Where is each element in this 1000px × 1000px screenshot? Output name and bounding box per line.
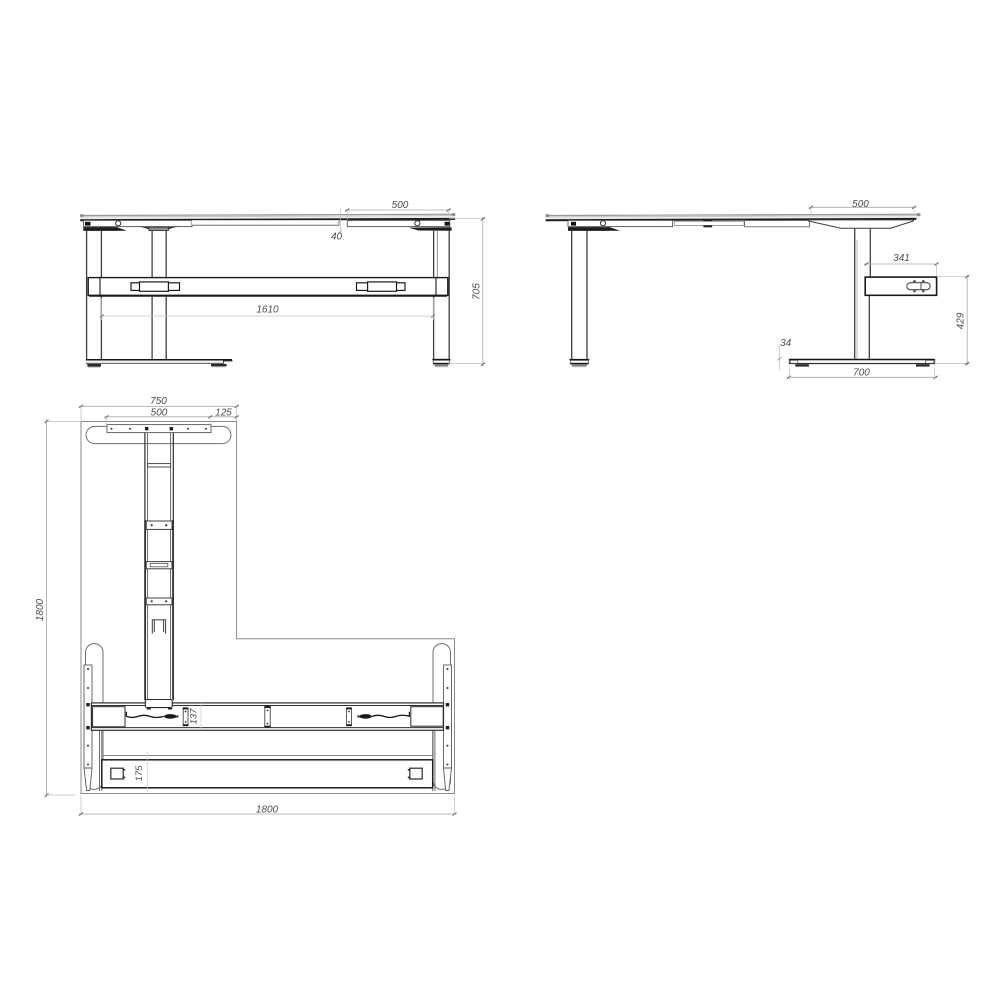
svg-text:40: 40: [331, 231, 343, 242]
svg-text:500: 500: [151, 407, 168, 418]
svg-text:34: 34: [780, 338, 792, 349]
svg-text:175: 175: [134, 765, 145, 782]
svg-text:125: 125: [215, 407, 232, 418]
svg-text:700: 700: [853, 367, 870, 378]
svg-text:429: 429: [956, 312, 967, 329]
svg-text:1800: 1800: [256, 804, 279, 815]
svg-text:500: 500: [852, 199, 869, 210]
svg-text:137: 137: [188, 708, 199, 725]
svg-text:500: 500: [392, 200, 409, 211]
svg-text:341: 341: [893, 253, 910, 264]
svg-text:705: 705: [471, 283, 482, 300]
svg-text:1800: 1800: [35, 598, 46, 621]
svg-text:750: 750: [150, 396, 167, 407]
svg-text:1610: 1610: [256, 305, 279, 316]
